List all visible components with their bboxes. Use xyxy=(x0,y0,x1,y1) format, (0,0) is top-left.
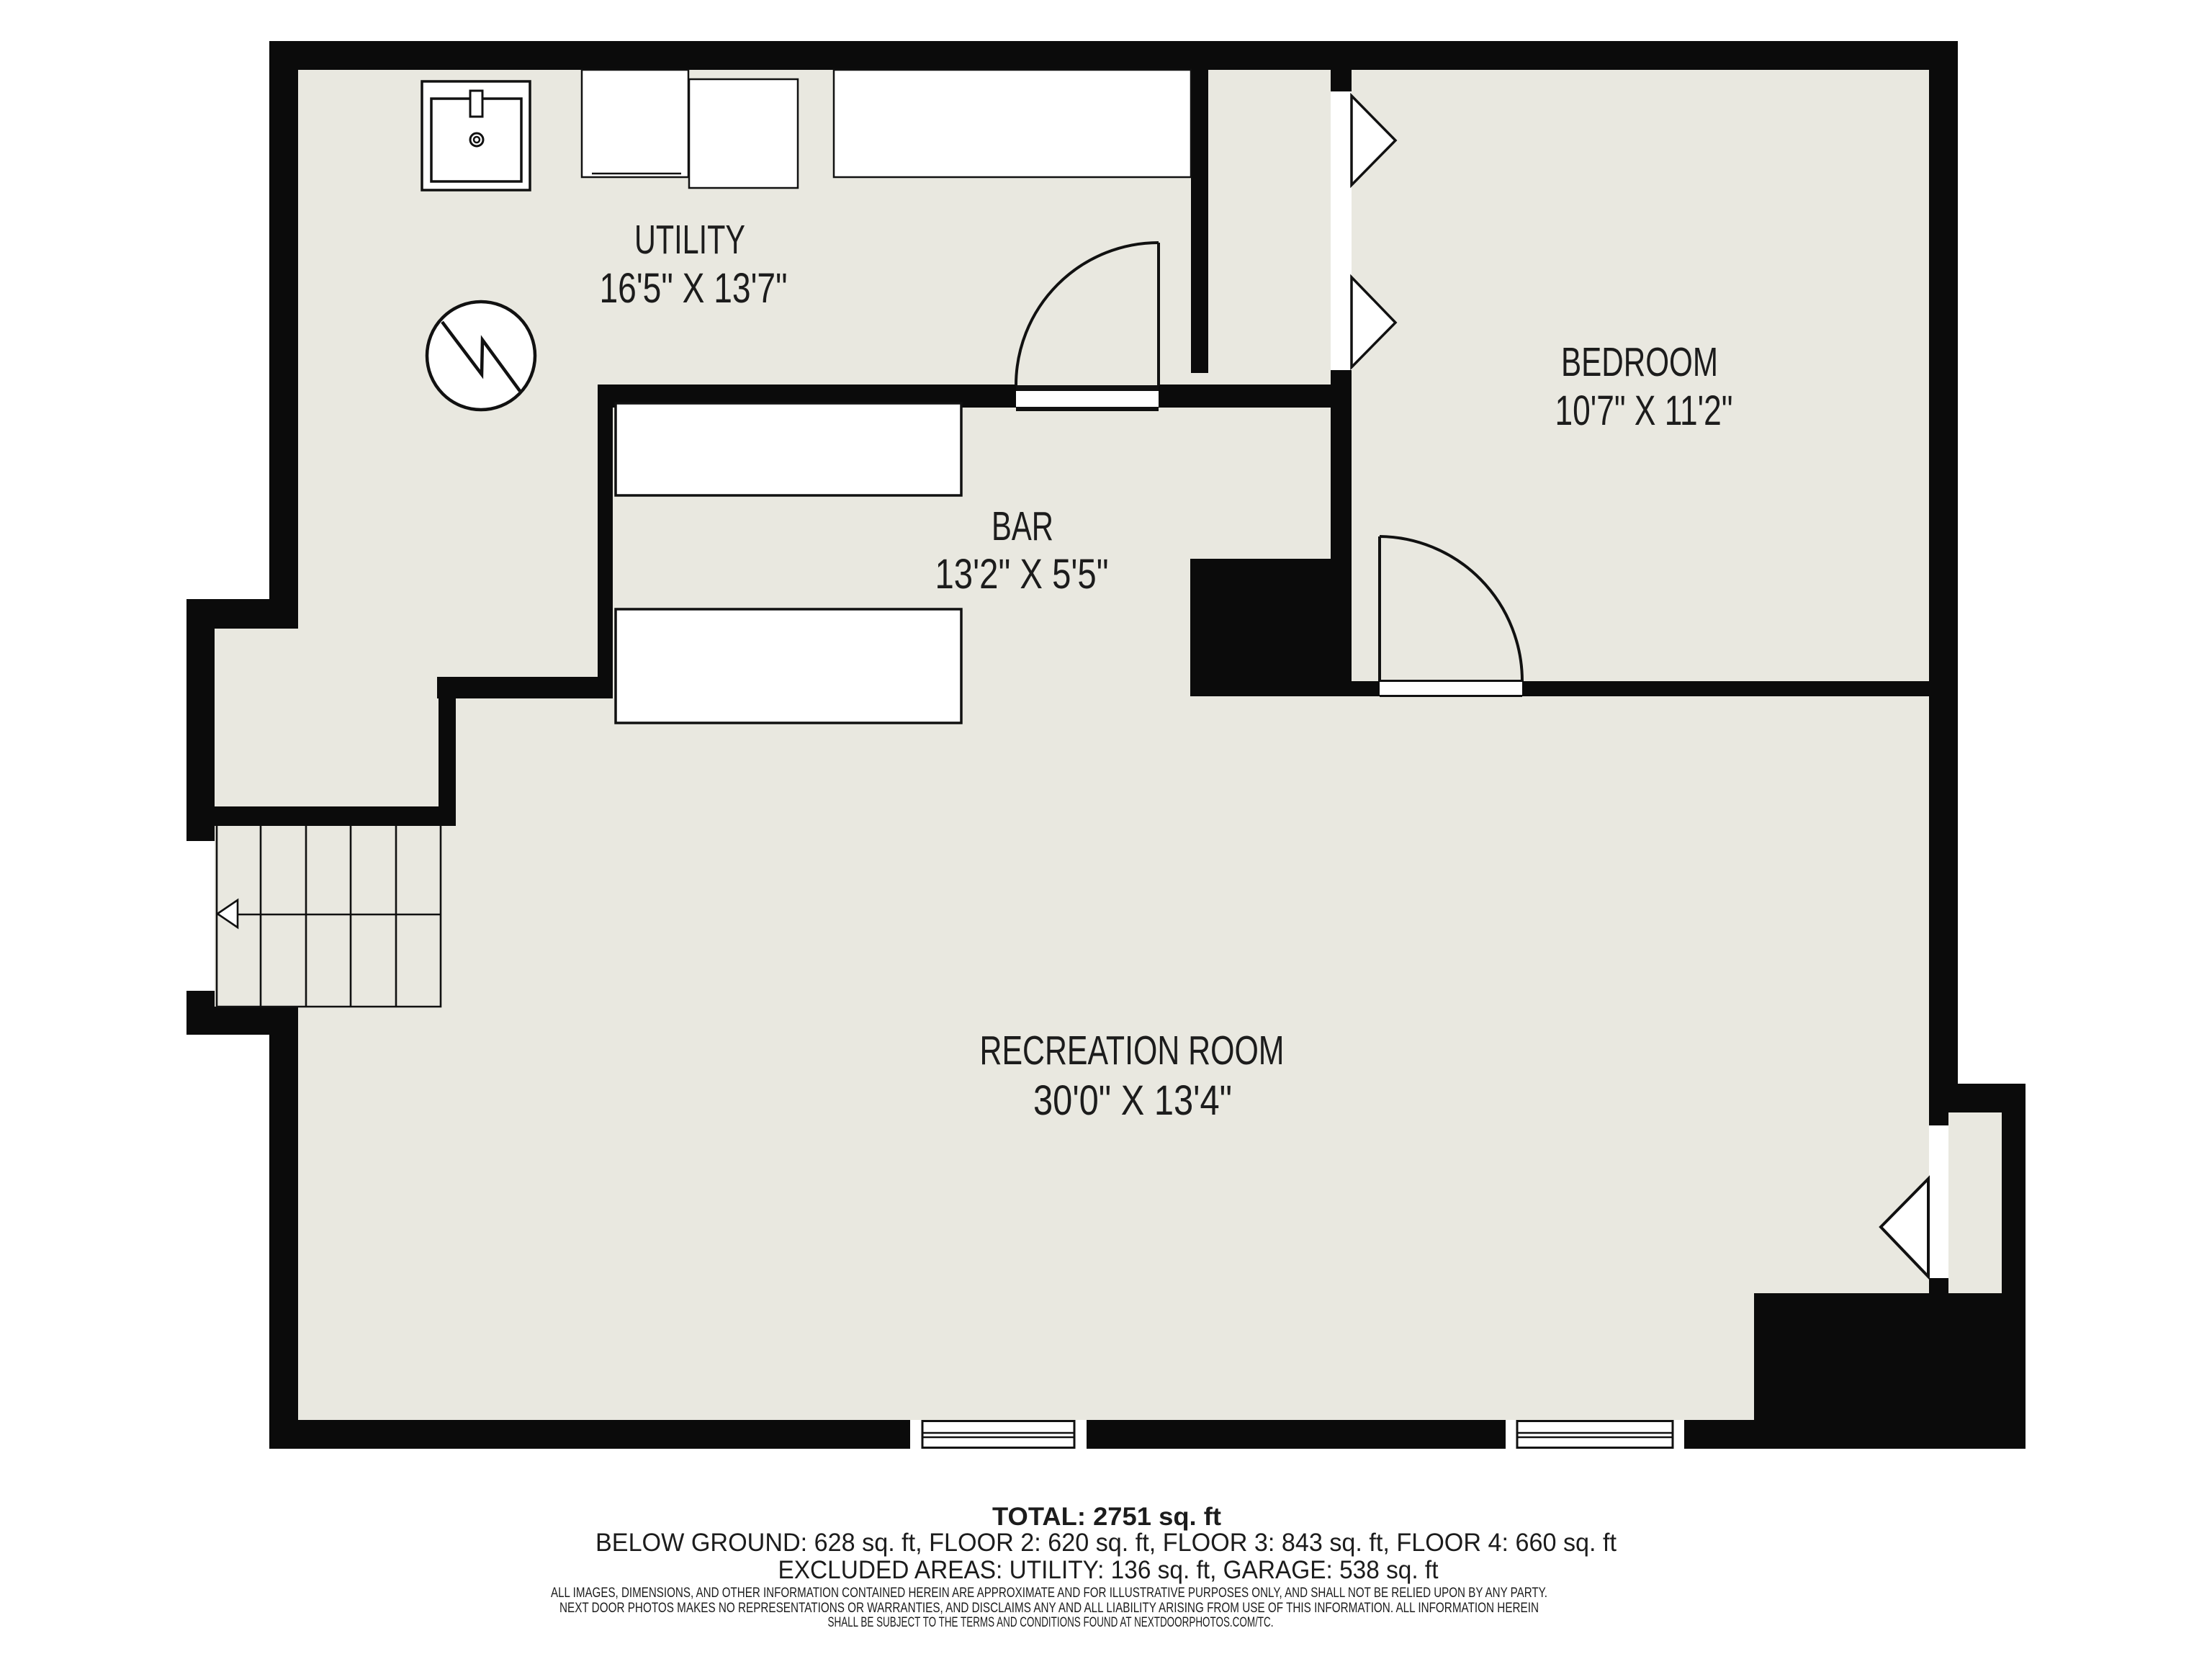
svg-text:EXCLUDED AREAS: UTILITY: 136 s: EXCLUDED AREAS: UTILITY: 136 sq. ft, GAR… xyxy=(778,1556,1439,1584)
svg-text:UTILITY: UTILITY xyxy=(634,217,745,263)
svg-text:13'2" X 5'5": 13'2" X 5'5" xyxy=(935,551,1109,598)
svg-text:30'0" X 13'4": 30'0" X 13'4" xyxy=(1033,1077,1232,1124)
svg-text:ALL IMAGES, DIMENSIONS, AND OT: ALL IMAGES, DIMENSIONS, AND OTHER INFORM… xyxy=(551,1586,1547,1601)
svg-text:16'5" X 13'7": 16'5" X 13'7" xyxy=(600,265,788,312)
svg-text:BEDROOM: BEDROOM xyxy=(1561,339,1718,385)
svg-text:RECREATION ROOM: RECREATION ROOM xyxy=(980,1028,1285,1074)
svg-text:BELOW GROUND: 628 sq. ft, FLOO: BELOW GROUND: 628 sq. ft, FLOOR 2: 620 s… xyxy=(595,1529,1617,1557)
svg-text:10'7" X 11'2": 10'7" X 11'2" xyxy=(1555,387,1733,434)
svg-text:SHALL BE SUBJECT TO THE TERMS: SHALL BE SUBJECT TO THE TERMS AND CONDIT… xyxy=(828,1615,1274,1630)
svg-text:TOTAL: 2751 sq. ft: TOTAL: 2751 sq. ft xyxy=(992,1503,1221,1531)
svg-text:NEXT DOOR PHOTOS MAKES NO REPR: NEXT DOOR PHOTOS MAKES NO REPRESENTATION… xyxy=(559,1601,1539,1616)
svg-text:BAR: BAR xyxy=(992,503,1053,549)
